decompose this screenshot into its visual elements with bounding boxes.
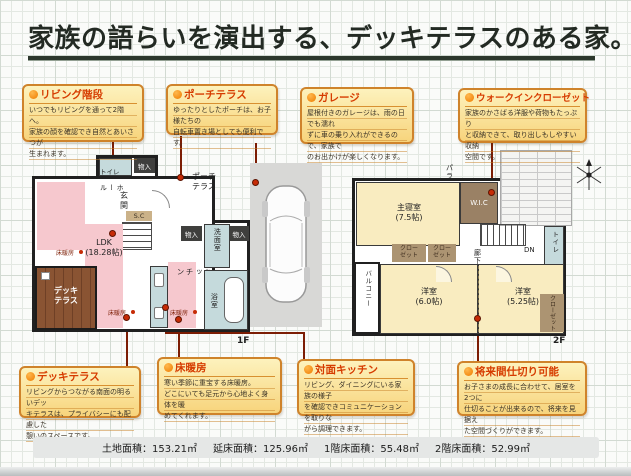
- dot-living-stairs: [109, 230, 116, 237]
- storage-box-top: 物入: [134, 158, 155, 173]
- callout-walk-in-closet: ウォークインクローゼット 家族のかさばる洋服や荷物もたっぷり と収納できて、取り…: [458, 88, 587, 143]
- callout-title: リビング階段: [29, 89, 137, 104]
- dot-wic: [488, 189, 495, 196]
- callout-counter-kitchen: 対面キッチン リビング、ダイニングにいる家族の様子 を確認できコミュニケーション…: [297, 359, 415, 416]
- bullet-icon: [304, 365, 313, 374]
- callout-title-text: デッキテラス: [37, 371, 100, 383]
- entrance-label: 玄関: [120, 191, 128, 210]
- toilet-label-1f: トイレ: [100, 168, 120, 176]
- callout-body: 寒い季節に重宝する床暖房。 どこにいても足元から心地よく身体を暖 めてくれます。: [164, 378, 275, 422]
- connector-kitchen-v2: [303, 332, 305, 360]
- callout-title: ポーチテラス: [173, 89, 271, 104]
- callout-porch-terrace: ポーチテラス ゆったりとしたポーチは、お子様たちの 自転車置き場としても便利です…: [166, 84, 278, 135]
- callout-body: お子さまの成長に合わせて、居室を2つに 仕切ることが出来るので、将来を見据え た…: [464, 382, 580, 437]
- callout-title-text: ガレージ: [318, 92, 360, 104]
- dot-future-partition: [474, 315, 481, 322]
- deck-label: デッキ テラス: [37, 286, 95, 307]
- storage-box-mid1: 物入: [181, 226, 202, 241]
- callout-floor-heating: 床暖房 寒い季節に重宝する床暖房。 どこにいても足元から心地よく身体を暖 めてく…: [157, 357, 282, 415]
- callout-future-partition: 将来間仕切り可能 お子さまの成長に合わせて、居室を2つに 仕切ることが出来るので…: [457, 361, 587, 416]
- washroom: 洗面室: [204, 224, 230, 268]
- balcony-label: バルコニー: [363, 270, 371, 308]
- callout-body: リビングからつながる南面の明るいデッ キテラスは、プライバシーにも配慮した 憩い…: [26, 387, 134, 442]
- stairs-2f: [480, 224, 526, 246]
- master-bedroom: 主寝室 (7.5帖): [356, 182, 460, 246]
- bedroom-a-label: 洋室 (6.0帖): [403, 287, 455, 306]
- floor-label-1f: 1F: [237, 336, 249, 346]
- ldk-living-area: [37, 182, 85, 250]
- washroom-label: 洗面室: [213, 228, 221, 252]
- callout-title: 対面キッチン: [304, 364, 408, 379]
- land-area: 土地面積：153.21㎡: [102, 440, 197, 455]
- master-bedroom-label: 主寝室 (7.5帖): [381, 203, 437, 222]
- car-top-view: [259, 183, 313, 305]
- callout-title-text: リビング階段: [40, 89, 103, 101]
- callout-title-text: 対面キッチン: [315, 364, 378, 376]
- garage-area: [250, 163, 322, 327]
- callout-body: 家族のかさばる洋服や荷物もたっぷり と収納できて、取り出しもしやすい収納 空間で…: [465, 108, 580, 163]
- callout-title-text: 将来間仕切り可能: [475, 366, 559, 378]
- callout-title: デッキテラス: [26, 371, 134, 386]
- closet-vertical-label: クローゼット: [548, 295, 557, 331]
- sink-icon: [154, 273, 164, 287]
- closet-box-3: クローゼット: [540, 294, 564, 332]
- bathroom: 浴室: [204, 270, 248, 330]
- dot-deck-terrace: [123, 314, 130, 321]
- callout-body: リビング、ダイニングにいる家族の様子 を確認できコミュニケーションを取りな がら…: [304, 380, 408, 435]
- callout-title: 将来間仕切り可能: [464, 366, 580, 381]
- callout-title-text: 床暖房: [175, 362, 207, 374]
- callout-body: いつでもリビングを通って2階へ。 家族の顔を確認でき自然とあいさつが 生まれます…: [29, 105, 137, 160]
- toilet-room-1f: トイレ: [99, 158, 132, 176]
- callout-title-text: ウォークインクローゼット: [476, 93, 590, 104]
- first-floor-area: 1階床面積：55.48㎡: [324, 440, 419, 455]
- storage-label: 物入: [138, 161, 151, 171]
- callout-living-stairs: リビング階段 いつでもリビングを通って2階へ。 家族の顔を確認でき自然とあいさつ…: [22, 84, 144, 142]
- bullet-icon: [26, 372, 35, 381]
- dot-garage: [252, 179, 259, 186]
- callout-title-text: ポーチテラス: [184, 89, 247, 101]
- flyer-page: 家族の語らいを演出する、デッキテラスのある家。 トイレ 物入 ホール: [0, 0, 631, 476]
- storage-label: 物入: [185, 229, 198, 239]
- floor-heating-dot-2: [131, 310, 135, 314]
- callout-body: 屋根付きのガレージは、雨の日でも濡れ ずに車の乗り入れができるので、家族で のお…: [307, 108, 407, 163]
- dot-floor-heating: [175, 316, 182, 323]
- ldk-label: LDK (18.28帖): [80, 238, 128, 257]
- bullet-icon: [29, 90, 38, 99]
- area-summary-bar: 土地面積：153.21㎡ 延床面積：125.96㎡ 1階床面積：55.48㎡ 2…: [33, 437, 599, 458]
- connector-kitchen-h: [165, 332, 305, 334]
- balcony-area: バルコニー: [354, 262, 380, 334]
- title-underline: [28, 56, 595, 61]
- bottom-edge-band: [0, 467, 631, 476]
- porch-label: ポーチ テラス: [192, 172, 228, 191]
- future-partition-line: [478, 266, 479, 332]
- bathtub-icon: [224, 277, 244, 323]
- dot-porch-terrace: [177, 174, 184, 181]
- floor-heating-label-1: 床暖房: [56, 248, 74, 257]
- floor-heating-dot-1: [79, 250, 83, 254]
- callout-garage: ガレージ 屋根付きのガレージは、雨の日でも濡れ ずに車の乗り入れができるので、家…: [300, 87, 414, 144]
- callout-body: ゆったりとしたポーチは、お子様たちの 自転車置き場としても便利です。: [173, 105, 271, 149]
- callout-title: 床暖房: [164, 362, 275, 377]
- bullet-icon: [465, 93, 474, 102]
- callout-title: ガレージ: [307, 92, 407, 107]
- storage-box-mid2: 物入: [229, 226, 249, 241]
- bullet-icon: [164, 363, 173, 372]
- shoe-closet-box: S.C: [126, 211, 152, 221]
- deck-terrace-area: デッキ テラス: [35, 266, 97, 330]
- callout-deck-terrace: デッキテラス リビングからつながる南面の明るいデッ キテラスは、プライバシーにも…: [19, 366, 141, 418]
- shoe-closet-label: S.C: [134, 212, 145, 220]
- second-floor-area: 2階床面積：52.99㎡: [435, 440, 530, 455]
- floor-label-2f: 2F: [553, 336, 565, 346]
- closet-box-1: クロー ゼット: [392, 244, 426, 262]
- toilet-room-2f: トイレ: [544, 226, 564, 266]
- bullet-icon: [307, 93, 316, 102]
- bathroom-label: 浴室: [210, 293, 218, 309]
- toilet-label-2f: トイレ: [550, 231, 558, 254]
- total-floor-area: 延床面積：125.96㎡: [213, 440, 308, 455]
- floor-heating-dot-3: [193, 310, 197, 314]
- closet-box-2: クロー ゼット: [428, 244, 456, 262]
- deck-fixture-icon: [41, 272, 50, 280]
- storage-label: 物入: [233, 229, 246, 239]
- bullet-icon: [464, 367, 473, 376]
- kitchen-counter: [150, 266, 168, 328]
- dn-label: DN: [524, 246, 535, 254]
- wic-label: W.I.C: [470, 199, 488, 207]
- bedroom-a: 洋室 (6.0帖): [380, 264, 478, 334]
- dot-counter-kitchen: [162, 304, 169, 311]
- bullet-icon: [173, 90, 182, 99]
- callout-title: ウォークインクローゼット: [465, 93, 580, 107]
- page-title: 家族の語らいを演出する、デッキテラスのある家。: [28, 18, 631, 55]
